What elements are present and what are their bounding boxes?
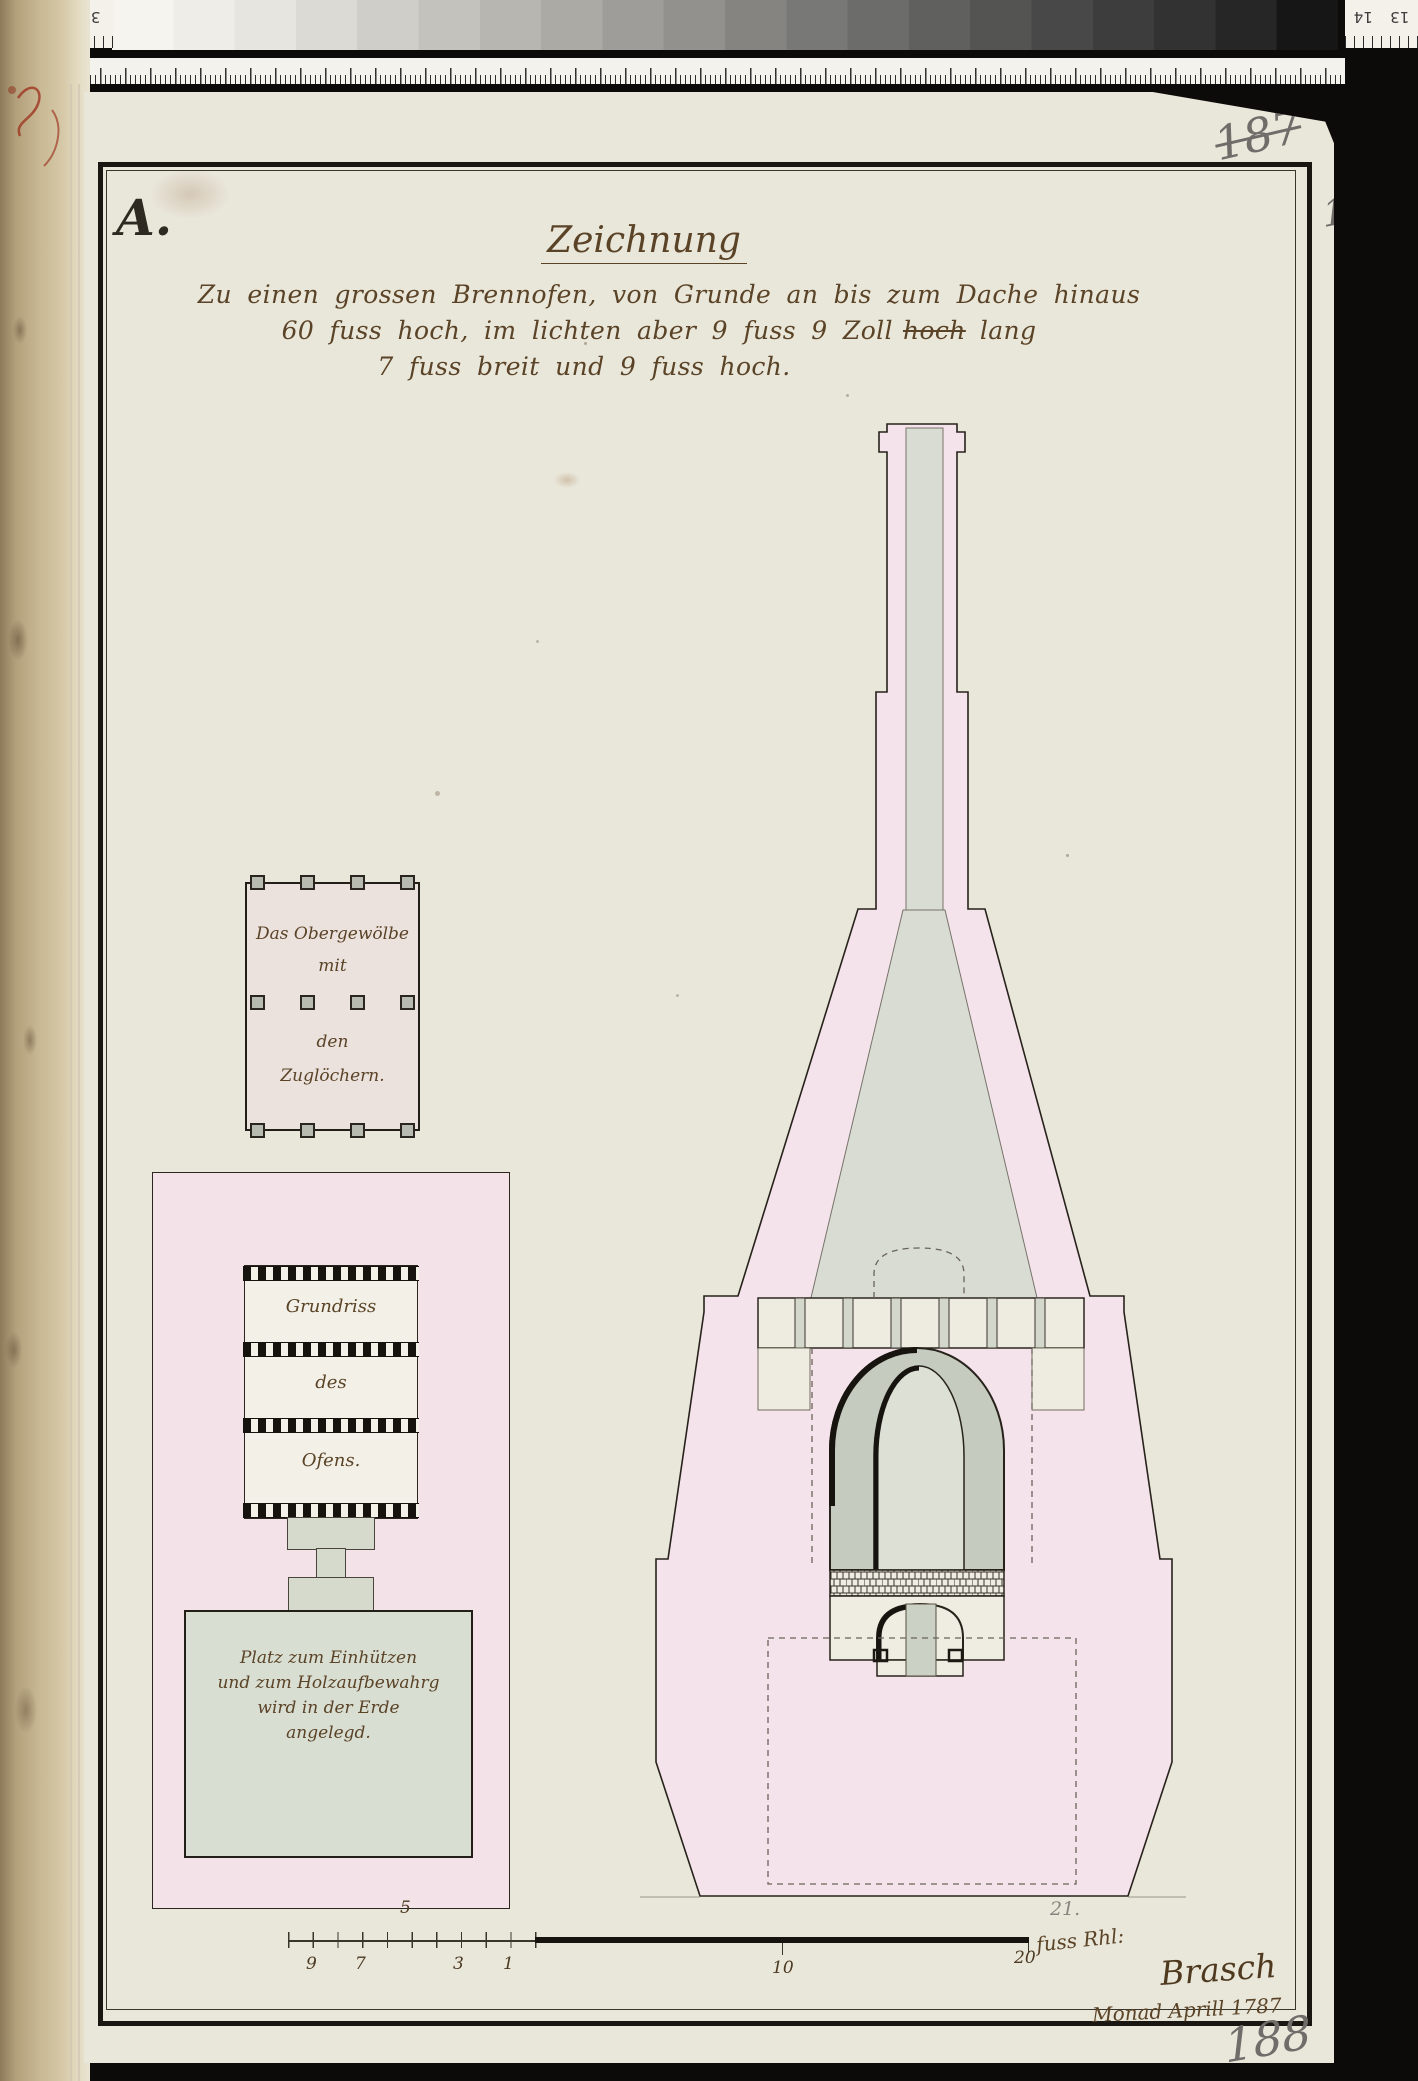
drawing-title: Zeichnung [484, 220, 804, 261]
vent-hole [350, 875, 365, 890]
vent-hole [300, 995, 315, 1010]
ground-plan-label: Ofens. [245, 1450, 417, 1471]
millimeter-ruler [0, 58, 1345, 84]
kiln-ground-plan: Grundriss des Ofens. Platz zum Einhützen… [152, 1172, 510, 1909]
ground-plan-label: Grundriss [245, 1296, 417, 1317]
red-ink-marks [0, 70, 90, 240]
pit-label: angelegd. [186, 1723, 471, 1743]
upper-plan-label: mit [247, 956, 418, 976]
scale-label-9: 9 [306, 1954, 317, 1974]
scale-tick-10 [782, 1943, 783, 1955]
central-pier [906, 1604, 936, 1676]
scale-label-1: 1 [503, 1954, 514, 1974]
upper-vault-plan: Das Obergewölbe mit den Zuglöchern. [245, 882, 420, 1131]
title-line-2: 60 fuss hoch, im lichten aber 9 fuss 9 Z… [184, 316, 1134, 345]
grate-stripe [243, 1266, 419, 1281]
ground-plan-label: des [245, 1372, 417, 1393]
upper-plan-label: Das Obergewölbe [247, 924, 418, 944]
pit-label: wird in der Erde [186, 1698, 471, 1718]
vent-hole [400, 1123, 415, 1138]
brick-grate [830, 1570, 1004, 1596]
page-edge-line [78, 84, 80, 2081]
paper-specks [84, 92, 87, 95]
ruler-right-piece: 13 14 [1345, 0, 1418, 48]
vent-hole [250, 875, 265, 890]
upper-plan-label: Zuglöchern. [247, 1066, 418, 1086]
vent-hole [350, 1123, 365, 1138]
ruler-number: 14 [1354, 8, 1373, 26]
vent-row [250, 1123, 415, 1138]
scanned-archive-page: { "scan": { "left_ruler": { "n1": "36", … [0, 0, 1418, 2081]
scale-bar-fine-ticks [288, 1932, 537, 1948]
page-edge-line [70, 84, 72, 2081]
scale-label-20: 20 [1014, 1948, 1036, 1968]
pit-label: Platz zum Einhützen [186, 1648, 471, 1668]
scale-label-5: 5 [400, 1898, 411, 1918]
title-line-2b: lang [980, 316, 1037, 345]
vent-hole [300, 1123, 315, 1138]
stoking-pit: Platz zum Einhützen und zum Holzaufbewah… [184, 1610, 473, 1858]
side-channel [1032, 1348, 1084, 1410]
flue-neck [287, 1517, 375, 1550]
vent-row [250, 995, 415, 1010]
foxing-stain [554, 472, 580, 488]
flue-neck [316, 1548, 346, 1579]
title-line-1: Zu einen grossen Brennofen, von Grunde a… [184, 280, 1154, 309]
vent-hole [350, 995, 365, 1010]
manuscript-sheet: 187 188 188 A. Zeichnung Zu einen grosse… [84, 92, 1334, 2063]
scale-label-3: 3 [453, 1954, 464, 1974]
vent-hole [250, 1123, 265, 1138]
upper-plan-label: den [247, 1032, 418, 1052]
grayscale-calibration-bar [112, 0, 1338, 50]
grate-stripe [243, 1342, 419, 1357]
scale-label-10: 10 [772, 1958, 794, 1978]
title-line-2a: 60 fuss hoch, im lichten aber 9 fuss 9 Z… [282, 316, 893, 345]
item-letter-a: A. [116, 188, 172, 247]
folio-number-crossed-out: 187 [1209, 99, 1307, 171]
vent-row [250, 875, 415, 890]
struck-word: hoch [903, 316, 966, 345]
grate-stripe [243, 1503, 419, 1518]
flue-neck [288, 1577, 374, 1611]
vent-hole [400, 875, 415, 890]
pit-label: und zum Holzaufbewahrg [186, 1673, 471, 1693]
signature-name: Brasch [1159, 1946, 1278, 1993]
ruler-right-numbers: 13 14 [1345, 8, 1418, 26]
pencil-note-21: 21. [1050, 1898, 1080, 1920]
vent-hole [250, 995, 265, 1010]
scale-label-7: 7 [355, 1954, 366, 1974]
chimney-flue [906, 428, 943, 910]
side-channel [758, 1348, 810, 1410]
folio-number-top: 188 [1321, 181, 1391, 237]
vent-hole [400, 995, 415, 1010]
book-fore-edge [0, 0, 90, 2081]
vent-hole [300, 875, 315, 890]
grate-stripe [243, 1418, 419, 1433]
kiln-cross-section [604, 392, 1224, 2012]
oven-chamber-plan: Grundriss des Ofens. [244, 1265, 418, 1519]
ruler-number: 13 [1390, 8, 1409, 26]
ruler-ticks [1345, 36, 1418, 48]
title-line-3: 7 fuss breit und 9 fuss hoch. [184, 352, 984, 381]
